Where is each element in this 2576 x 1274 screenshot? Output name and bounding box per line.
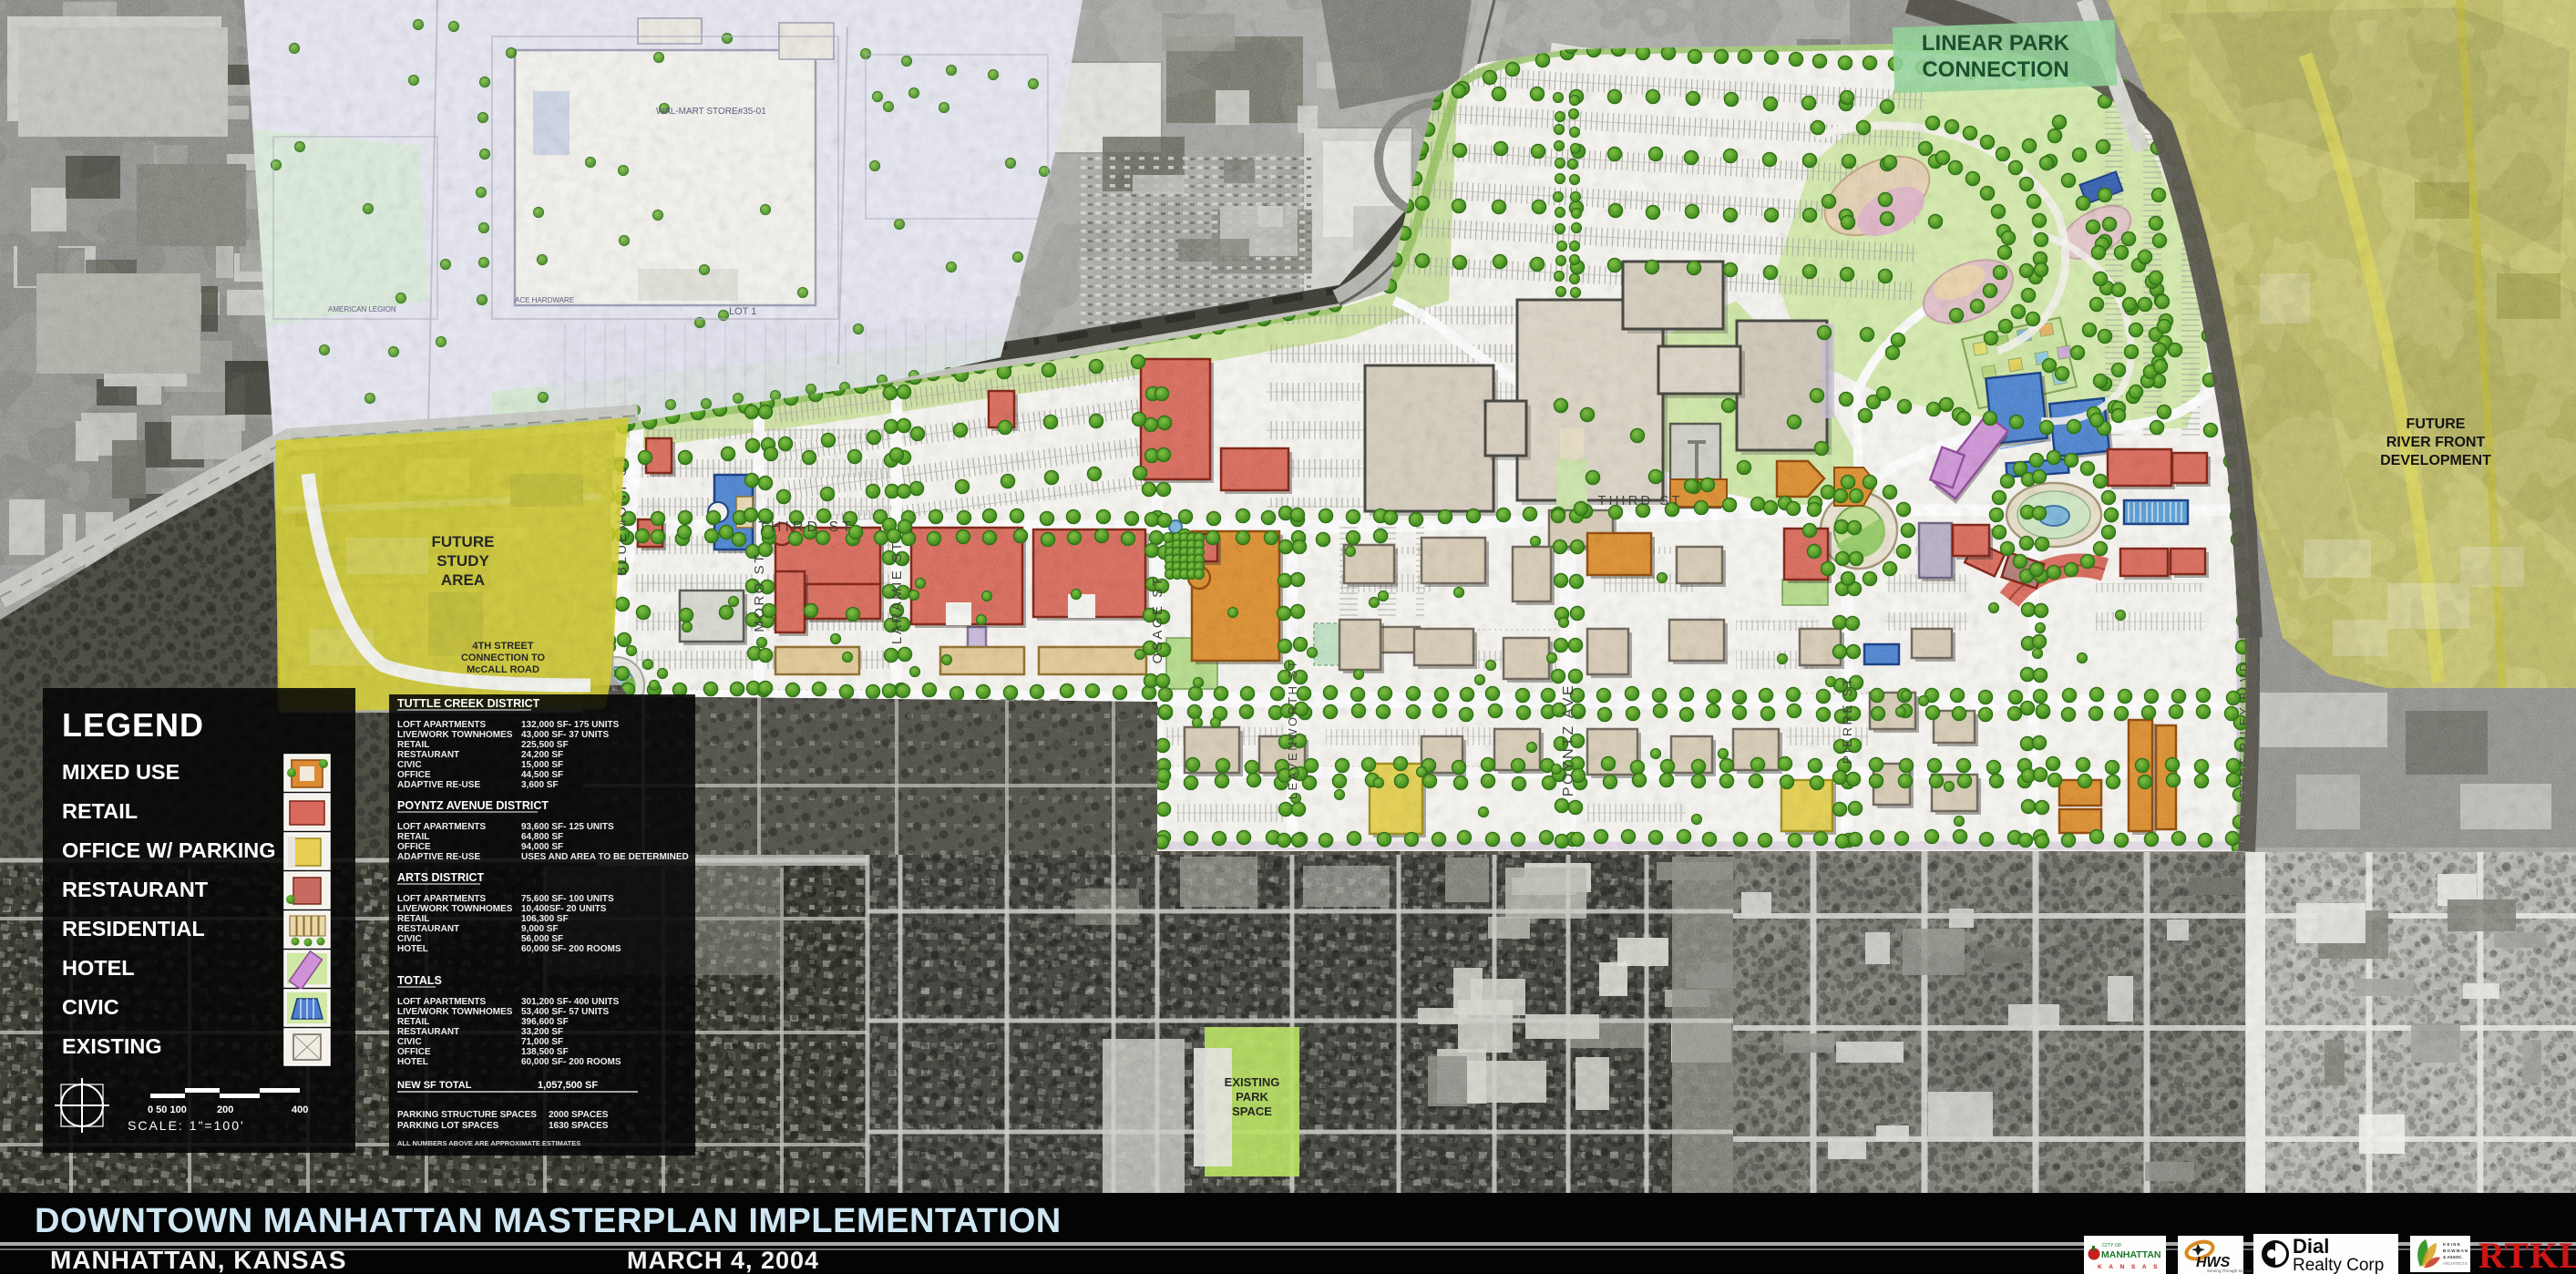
svg-text:33,200 SF: 33,200 SF: [521, 1027, 563, 1037]
svg-text:MANHATTAN: MANHATTAN: [2101, 1249, 2161, 1260]
svg-text:OFFICE W/ PARKING: OFFICE W/ PARKING: [62, 838, 276, 862]
svg-text:LOFT APARTMENTS: LOFT APARTMENTS: [397, 997, 487, 1007]
svg-text:K E I N E: K E I N E: [2443, 1242, 2460, 1247]
svg-text:43,000 SF- 37 UNITS: 43,000 SF- 37 UNITS: [521, 730, 609, 740]
svg-text:CIVIC: CIVIC: [397, 1037, 422, 1047]
svg-text:75,600 SF- 100 UNITS: 75,600 SF- 100 UNITS: [521, 894, 614, 904]
svg-text:Serving Through Service: Serving Through Service: [2207, 1269, 2253, 1273]
svg-text:RETAIL: RETAIL: [397, 914, 429, 924]
svg-text:60,000 SF- 200 ROOMS: 60,000 SF- 200 ROOMS: [521, 1057, 621, 1067]
svg-text:ADAPTIVE RE-USE: ADAPTIVE RE-USE: [397, 852, 480, 862]
svg-text:LOFT APARTMENTS: LOFT APARTMENTS: [397, 894, 487, 904]
svg-text:94,000 SF: 94,000 SF: [521, 842, 563, 852]
svg-text:3,600 SF: 3,600 SF: [521, 780, 559, 790]
svg-text:B O W M A N: B O W M A N: [2443, 1248, 2468, 1253]
svg-text:HOTEL: HOTEL: [62, 956, 135, 980]
svg-text:ADAPTIVE RE-USE: ADAPTIVE RE-USE: [397, 780, 480, 790]
svg-text:1,057,500 SF: 1,057,500 SF: [538, 1080, 598, 1091]
svg-text:ALL NUMBERS ABOVE ARE APPROXIM: ALL NUMBERS ABOVE ARE APPROXIMATE ESTIMA…: [397, 1139, 580, 1147]
svg-text:9,000 SF: 9,000 SF: [521, 924, 559, 934]
svg-text:RESTAURANT: RESTAURANT: [397, 750, 459, 760]
svg-text:0 50 100: 0 50 100: [148, 1104, 187, 1115]
svg-text:TOTALS: TOTALS: [397, 974, 442, 987]
svg-text:301,200 SF- 400 UNITS: 301,200 SF- 400 UNITS: [521, 997, 620, 1007]
svg-text:106,300 SF: 106,300 SF: [521, 914, 569, 924]
svg-text:138,500 SF: 138,500 SF: [521, 1047, 569, 1057]
svg-text:CIVIC: CIVIC: [62, 995, 119, 1019]
svg-text:RETAIL: RETAIL: [62, 799, 138, 823]
svg-text:ARCHITECTS: ARCHITECTS: [2443, 1261, 2468, 1266]
svg-text:MARCH 4, 2004: MARCH 4, 2004: [627, 1247, 819, 1274]
svg-text:USES AND AREA TO BE DETERMINED: USES AND AREA TO BE DETERMINED: [521, 852, 689, 862]
svg-text:44,500 SF: 44,500 SF: [521, 770, 563, 780]
svg-text:DOWNTOWN MANHATTAN MASTERPLAN: DOWNTOWN MANHATTAN MASTERPLAN IMPLEMENTA…: [35, 1202, 1062, 1240]
svg-text:RETAIL: RETAIL: [397, 740, 429, 750]
svg-text:53,400 SF- 57 UNITS: 53,400 SF- 57 UNITS: [521, 1007, 609, 1017]
svg-text:1630 SPACES: 1630 SPACES: [549, 1121, 609, 1131]
svg-text:K A N S A S: K A N S A S: [2098, 1264, 2160, 1270]
svg-text:400: 400: [292, 1104, 308, 1115]
svg-text:64,800 SF: 64,800 SF: [521, 832, 563, 842]
svg-text:ARTS DISTRICT: ARTS DISTRICT: [397, 871, 485, 884]
svg-text:396,600 SF: 396,600 SF: [521, 1017, 569, 1027]
svg-text:& ASSOC.: & ASSOC.: [2443, 1255, 2463, 1259]
svg-text:225,500 SF: 225,500 SF: [521, 740, 569, 750]
svg-text:PARKING LOT SPACES: PARKING LOT SPACES: [397, 1121, 499, 1131]
svg-text:EXISTING: EXISTING: [62, 1034, 162, 1058]
svg-text:Dial: Dial: [2293, 1235, 2329, 1258]
svg-text:56,000 SF: 56,000 SF: [521, 934, 563, 944]
svg-text:71,000 SF: 71,000 SF: [521, 1037, 563, 1047]
svg-text:200: 200: [217, 1104, 233, 1115]
svg-text:15,000 SF: 15,000 SF: [521, 760, 563, 770]
svg-text:10,400SF- 20 UNITS: 10,400SF- 20 UNITS: [521, 904, 607, 914]
svg-text:Realty Corp: Realty Corp: [2293, 1256, 2384, 1274]
svg-text:LIVE/WORK TOWNHOMES: LIVE/WORK TOWNHOMES: [397, 730, 513, 740]
svg-text:2000 SPACES: 2000 SPACES: [549, 1110, 609, 1120]
svg-text:CIVIC: CIVIC: [397, 934, 422, 944]
svg-text:LIVE/WORK TOWNHOMES: LIVE/WORK TOWNHOMES: [397, 1007, 513, 1017]
svg-text:HOTEL: HOTEL: [397, 1057, 428, 1067]
svg-text:OFFICE: OFFICE: [397, 770, 431, 780]
svg-text:HOTEL: HOTEL: [397, 944, 428, 954]
svg-text:MIXED USE: MIXED USE: [62, 760, 180, 784]
svg-text:CIVIC: CIVIC: [397, 760, 422, 770]
svg-text:93,600 SF- 125 UNITS: 93,600 SF- 125 UNITS: [521, 822, 614, 832]
svg-text:RESIDENTIAL: RESIDENTIAL: [62, 917, 205, 940]
svg-text:132,000 SF- 175 UNITS: 132,000 SF- 175 UNITS: [521, 720, 620, 730]
svg-text:PARKING STRUCTURE SPACES: PARKING STRUCTURE SPACES: [397, 1110, 537, 1120]
svg-text:60,000 SF- 200 ROOMS: 60,000 SF- 200 ROOMS: [521, 944, 621, 954]
svg-text:MANHATTAN, KANSAS: MANHATTAN, KANSAS: [50, 1246, 347, 1274]
svg-text:LOFT APARTMENTS: LOFT APARTMENTS: [397, 720, 487, 730]
svg-text:RESTAURANT: RESTAURANT: [397, 1027, 459, 1037]
svg-text:RTKL: RTKL: [2479, 1235, 2576, 1274]
svg-text:LOFT APARTMENTS: LOFT APARTMENTS: [397, 822, 487, 832]
svg-text:OFFICE: OFFICE: [397, 842, 431, 852]
svg-text:TUTTLE CREEK DISTRICT: TUTTLE CREEK DISTRICT: [397, 697, 540, 710]
svg-text:OFFICE: OFFICE: [397, 1047, 431, 1057]
svg-text:RETAIL: RETAIL: [397, 1017, 429, 1027]
svg-text:LEGEND: LEGEND: [62, 706, 204, 744]
svg-text:POYNTZ AVENUE DISTRICT: POYNTZ AVENUE DISTRICT: [397, 799, 549, 812]
svg-text:LIVE/WORK TOWNHOMES: LIVE/WORK TOWNHOMES: [397, 904, 513, 914]
svg-text:24,200 SF: 24,200 SF: [521, 750, 563, 760]
svg-text:RESTAURANT: RESTAURANT: [62, 878, 209, 901]
svg-text:RESTAURANT: RESTAURANT: [397, 924, 459, 934]
svg-text:SCALE: 1"=100': SCALE: 1"=100': [128, 1118, 245, 1133]
svg-text:RETAIL: RETAIL: [397, 832, 429, 842]
svg-text:CITY OF: CITY OF: [2102, 1243, 2122, 1248]
svg-text:NEW SF TOTAL: NEW SF TOTAL: [397, 1080, 472, 1091]
